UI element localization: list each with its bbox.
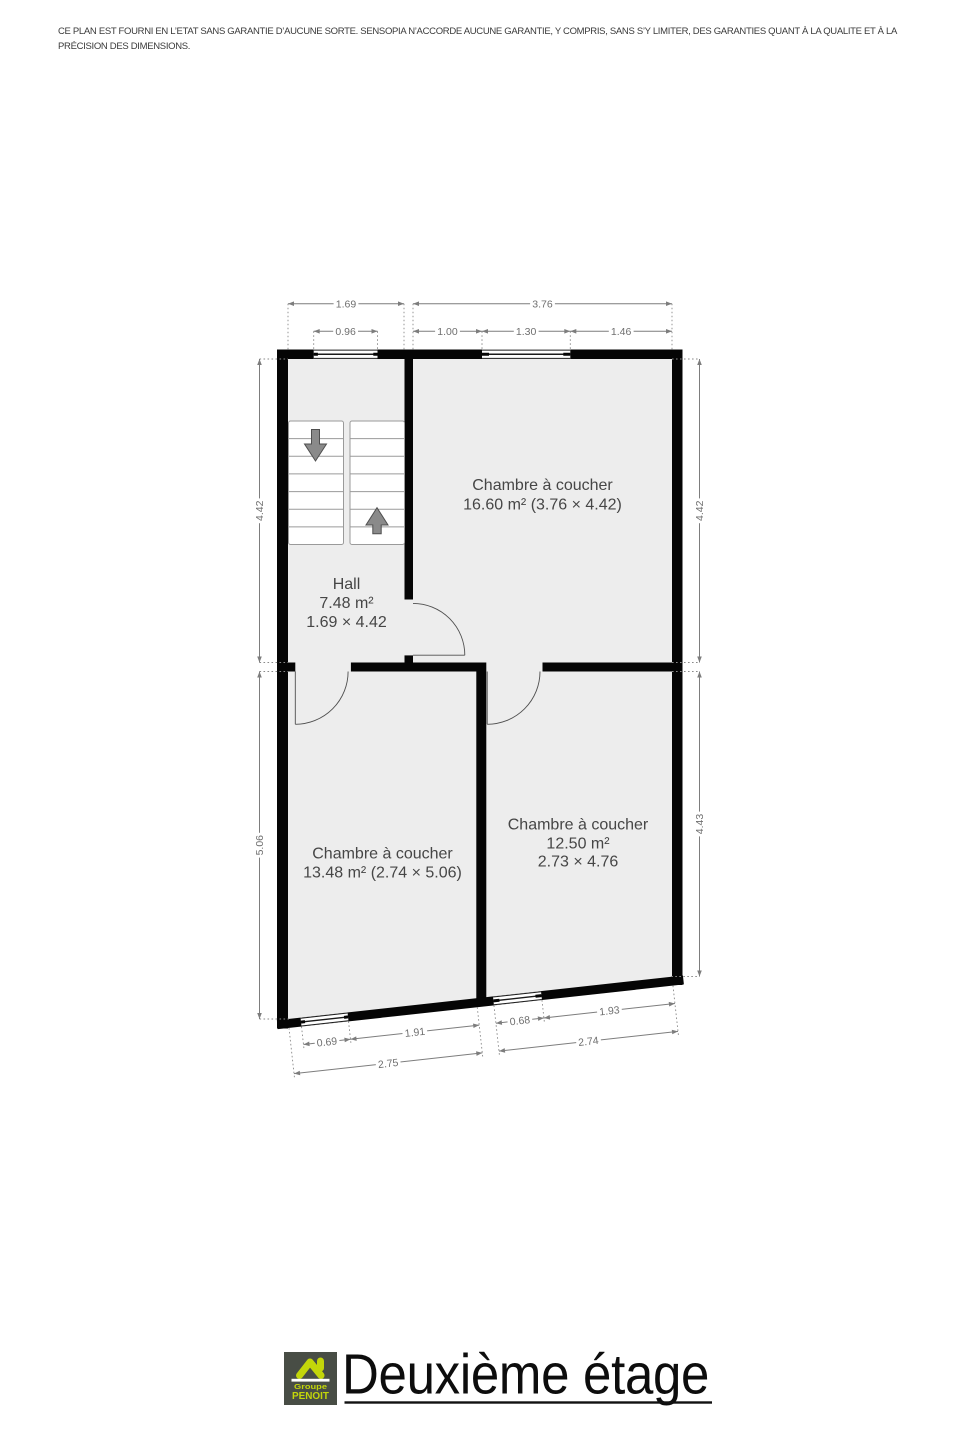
svg-text:1.93: 1.93 [599,1004,621,1018]
svg-text:3.76: 3.76 [532,298,553,310]
svg-text:12.50 m²: 12.50 m² [546,836,610,853]
svg-text:1.91: 1.91 [404,1026,426,1040]
svg-text:0.69: 0.69 [316,1035,338,1049]
svg-text:4.42: 4.42 [694,500,706,521]
svg-text:1.30: 1.30 [516,326,537,338]
svg-text:1.46: 1.46 [611,326,632,338]
svg-text:0.68: 0.68 [509,1014,531,1028]
svg-text:PRÉCISION DES DIMENSIONS.: PRÉCISION DES DIMENSIONS. [58,41,190,52]
svg-text:4.42: 4.42 [254,500,266,521]
svg-text:CE PLAN EST FOURNI EN L’ETAT S: CE PLAN EST FOURNI EN L’ETAT SANS GARANT… [58,26,898,37]
svg-text:7.48 m²: 7.48 m² [319,595,374,612]
svg-text:Chambre à coucher: Chambre à coucher [508,817,649,834]
svg-text:5.06: 5.06 [254,835,266,856]
svg-text:1.69 × 4.42: 1.69 × 4.42 [306,614,387,631]
svg-text:1.00: 1.00 [437,326,458,338]
svg-text:2.74: 2.74 [578,1035,600,1049]
svg-text:4.43: 4.43 [694,814,706,835]
svg-text:Hall: Hall [333,576,361,593]
svg-text:13.48 m² (2.74 × 5.06): 13.48 m² (2.74 × 5.06) [303,865,462,882]
svg-text:Chambre à coucher: Chambre à coucher [472,477,613,494]
svg-text:1.69: 1.69 [336,298,357,310]
svg-text:Chambre à coucher: Chambre à coucher [312,846,453,863]
svg-text:16.60 m² (3.76 × 4.42): 16.60 m² (3.76 × 4.42) [463,497,622,514]
svg-text:2.75: 2.75 [377,1057,399,1071]
svg-text:PENOIT: PENOIT [292,1390,330,1402]
svg-text:Deuxième étage: Deuxième étage [342,1343,709,1406]
svg-text:2.73 × 4.76: 2.73 × 4.76 [538,854,619,871]
svg-text:0.96: 0.96 [335,326,356,338]
